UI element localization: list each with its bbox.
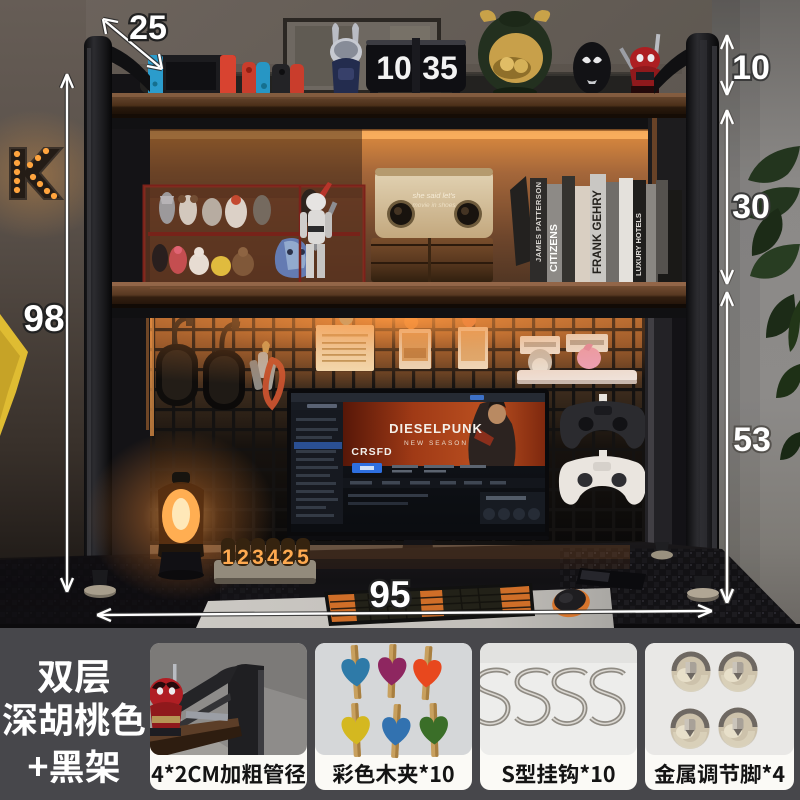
svg-text:she said let's: she said let's	[412, 191, 455, 200]
svg-text:4: 4	[267, 546, 279, 569]
svg-text:movie in shoes: movie in shoes	[412, 202, 456, 209]
svg-text:JAMES PATTERSON: JAMES PATTERSON	[534, 181, 543, 262]
svg-text:10: 10	[376, 50, 412, 86]
svg-text:NEW SEASON: NEW SEASON	[404, 440, 468, 447]
svg-text:LUXURY HOTELS: LUXURY HOTELS	[634, 213, 643, 276]
svg-text:10: 10	[732, 49, 770, 87]
svg-text:35: 35	[422, 50, 458, 86]
svg-text:25: 25	[129, 9, 167, 47]
svg-text:30: 30	[732, 188, 770, 226]
svg-text:2: 2	[237, 546, 249, 569]
svg-text:CRSFD: CRSFD	[351, 446, 392, 458]
svg-text:3: 3	[252, 546, 264, 569]
svg-text:FRANK GEHRY: FRANK GEHRY	[592, 190, 604, 274]
svg-text:53: 53	[733, 421, 771, 459]
svg-text:DIESELPUNK: DIESELPUNK	[389, 421, 483, 436]
svg-text:2: 2	[282, 546, 294, 569]
svg-text:5: 5	[297, 546, 309, 569]
svg-text:95: 95	[369, 574, 410, 615]
svg-text:98: 98	[23, 298, 64, 339]
svg-text:1: 1	[222, 546, 234, 569]
svg-text:CITIZENS: CITIZENS	[548, 224, 560, 272]
